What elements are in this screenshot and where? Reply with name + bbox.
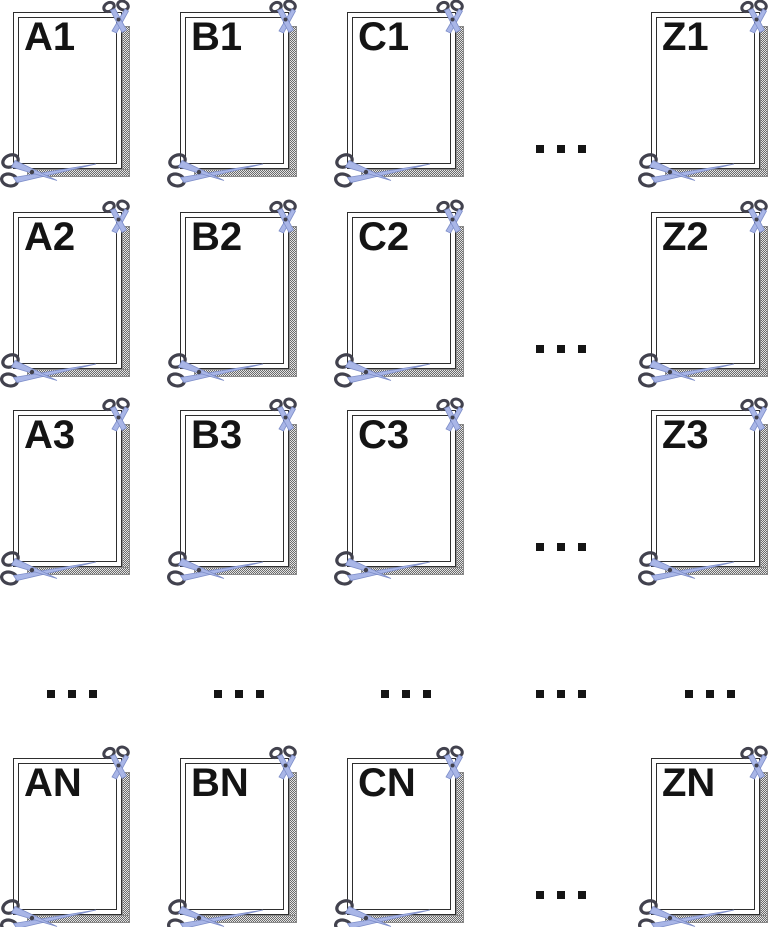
card-A1: A1 [13, 12, 130, 177]
card-label: C3 [358, 412, 409, 458]
cut-strip-right [456, 772, 464, 923]
card-label: A3 [24, 412, 75, 458]
cut-strip-right [289, 424, 297, 575]
ellipsis-dot [557, 345, 565, 353]
card-label: C2 [358, 214, 409, 260]
card-B3: B3 [180, 410, 297, 575]
cut-strip-right [456, 26, 464, 177]
ellipsis-dot [536, 345, 544, 353]
card-label: Z3 [662, 412, 709, 458]
scissors-icon [269, 200, 301, 236]
scissors-icon [167, 898, 267, 927]
card-C3: C3 [347, 410, 464, 575]
scissors-icon [334, 550, 434, 588]
card-label: ZN [662, 760, 715, 806]
cut-strip-right [122, 226, 130, 377]
scissors-icon [638, 352, 738, 390]
cut-apart-sheets-diagram: A1B1C1Z1A2B2C2Z2A3B3C3Z3ANBNCNZN [0, 0, 768, 927]
card-BN: BN [180, 758, 297, 923]
card-label: A2 [24, 214, 75, 260]
ellipsis-dot [235, 690, 243, 698]
card-ZN: ZN [651, 758, 768, 923]
cut-strip-right [760, 226, 768, 377]
cut-strip-right [122, 26, 130, 177]
rows-continue-ellipsis [685, 690, 735, 698]
ellipsis-dot [536, 690, 544, 698]
ellipsis-dot [557, 543, 565, 551]
scissors-icon [334, 898, 434, 927]
card-label: Z1 [662, 14, 709, 60]
scissors-icon [436, 398, 468, 434]
scissors-icon [269, 398, 301, 434]
cut-strip-right [289, 772, 297, 923]
card-label: Z2 [662, 214, 709, 260]
scissors-icon [638, 898, 738, 927]
cut-strip-right [456, 226, 464, 377]
rows-continue-ellipsis [214, 690, 264, 698]
ellipsis-dot [685, 690, 693, 698]
ellipsis-dot [536, 543, 544, 551]
ellipsis-dot [423, 690, 431, 698]
scissors-icon [269, 746, 301, 782]
card-Z2: Z2 [651, 212, 768, 377]
card-A3: A3 [13, 410, 130, 575]
card-label: AN [24, 760, 82, 806]
scissors-icon [638, 152, 738, 190]
card-label: B1 [191, 14, 242, 60]
scissors-icon [102, 746, 134, 782]
ellipsis-dot [578, 891, 586, 899]
rows-continue-ellipsis [381, 690, 431, 698]
ellipsis-dot [578, 543, 586, 551]
columns-continue-ellipsis [536, 543, 586, 551]
ellipsis-dot [536, 145, 544, 153]
card-C1: C1 [347, 12, 464, 177]
cut-strip-right [289, 26, 297, 177]
card-label: B2 [191, 214, 242, 260]
scissors-icon [269, 0, 301, 36]
card-label: BN [191, 760, 249, 806]
columns-continue-ellipsis [536, 891, 586, 899]
columns-continue-ellipsis [536, 145, 586, 153]
card-B1: B1 [180, 12, 297, 177]
ellipsis-dot [256, 690, 264, 698]
scissors-icon [436, 0, 468, 36]
card-Z1: Z1 [651, 12, 768, 177]
ellipsis-dot [578, 145, 586, 153]
scissors-icon [102, 398, 134, 434]
cut-strip-right [760, 772, 768, 923]
card-B2: B2 [180, 212, 297, 377]
card-Z3: Z3 [651, 410, 768, 575]
card-A2: A2 [13, 212, 130, 377]
card-AN: AN [13, 758, 130, 923]
cut-strip-right [289, 226, 297, 377]
ellipsis-dot [47, 690, 55, 698]
scissors-icon [167, 550, 267, 588]
scissors-icon [102, 200, 134, 236]
ellipsis-dot [557, 690, 565, 698]
ellipsis-dot [89, 690, 97, 698]
scissors-icon [167, 352, 267, 390]
scissors-icon [102, 0, 134, 36]
ellipsis-dot [578, 690, 586, 698]
scissors-icon [436, 200, 468, 236]
ellipsis-dot [536, 891, 544, 899]
scissors-icon [0, 152, 100, 190]
scissors-icon [0, 352, 100, 390]
ellipsis-dot [214, 690, 222, 698]
scissors-icon [0, 898, 100, 927]
ellipsis-dot [557, 145, 565, 153]
card-label: C1 [358, 14, 409, 60]
cut-strip-right [122, 424, 130, 575]
scissors-icon [740, 746, 768, 782]
ellipsis-dot [381, 690, 389, 698]
scissors-icon [436, 746, 468, 782]
scissors-icon [638, 550, 738, 588]
card-label: A1 [24, 14, 75, 60]
cut-strip-right [456, 424, 464, 575]
scissors-icon [334, 152, 434, 190]
card-CN: CN [347, 758, 464, 923]
ellipsis-dot [557, 891, 565, 899]
scissors-icon [740, 200, 768, 236]
cut-strip-right [760, 424, 768, 575]
scissors-icon [334, 352, 434, 390]
rows-continue-ellipsis [536, 690, 586, 698]
scissors-icon [740, 398, 768, 434]
ellipsis-dot [706, 690, 714, 698]
cut-strip-right [122, 772, 130, 923]
columns-continue-ellipsis [536, 345, 586, 353]
scissors-icon [0, 550, 100, 588]
ellipsis-dot [68, 690, 76, 698]
scissors-icon [740, 0, 768, 36]
cut-strip-right [760, 26, 768, 177]
card-label: CN [358, 760, 416, 806]
card-C2: C2 [347, 212, 464, 377]
ellipsis-dot [578, 345, 586, 353]
rows-continue-ellipsis [47, 690, 97, 698]
scissors-icon [167, 152, 267, 190]
card-label: B3 [191, 412, 242, 458]
ellipsis-dot [402, 690, 410, 698]
ellipsis-dot [727, 690, 735, 698]
